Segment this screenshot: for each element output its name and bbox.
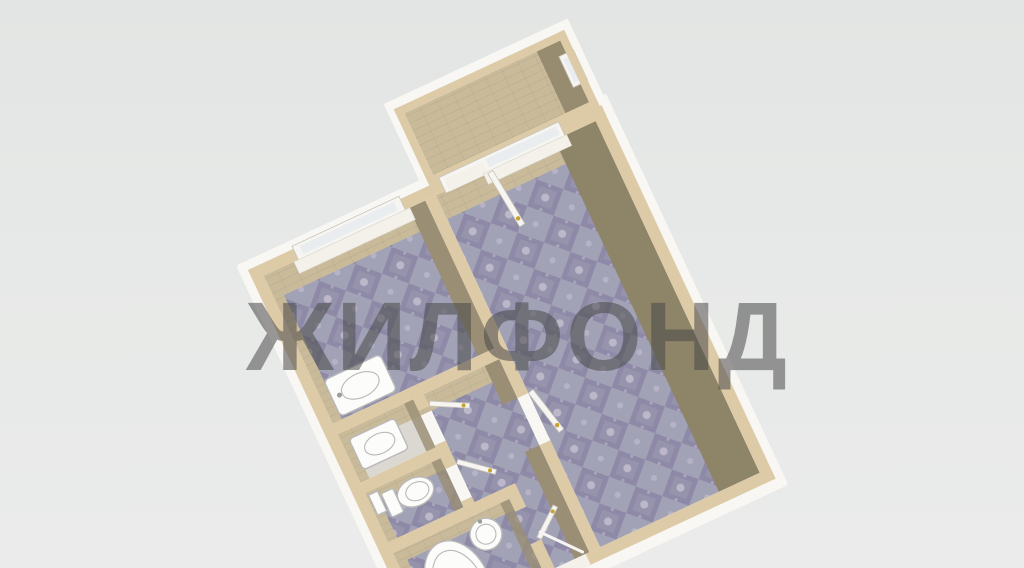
watermark: ЖИЛФОНД [246, 288, 786, 385]
screenshot-root: ЖИЛФОНД [0, 0, 1024, 568]
